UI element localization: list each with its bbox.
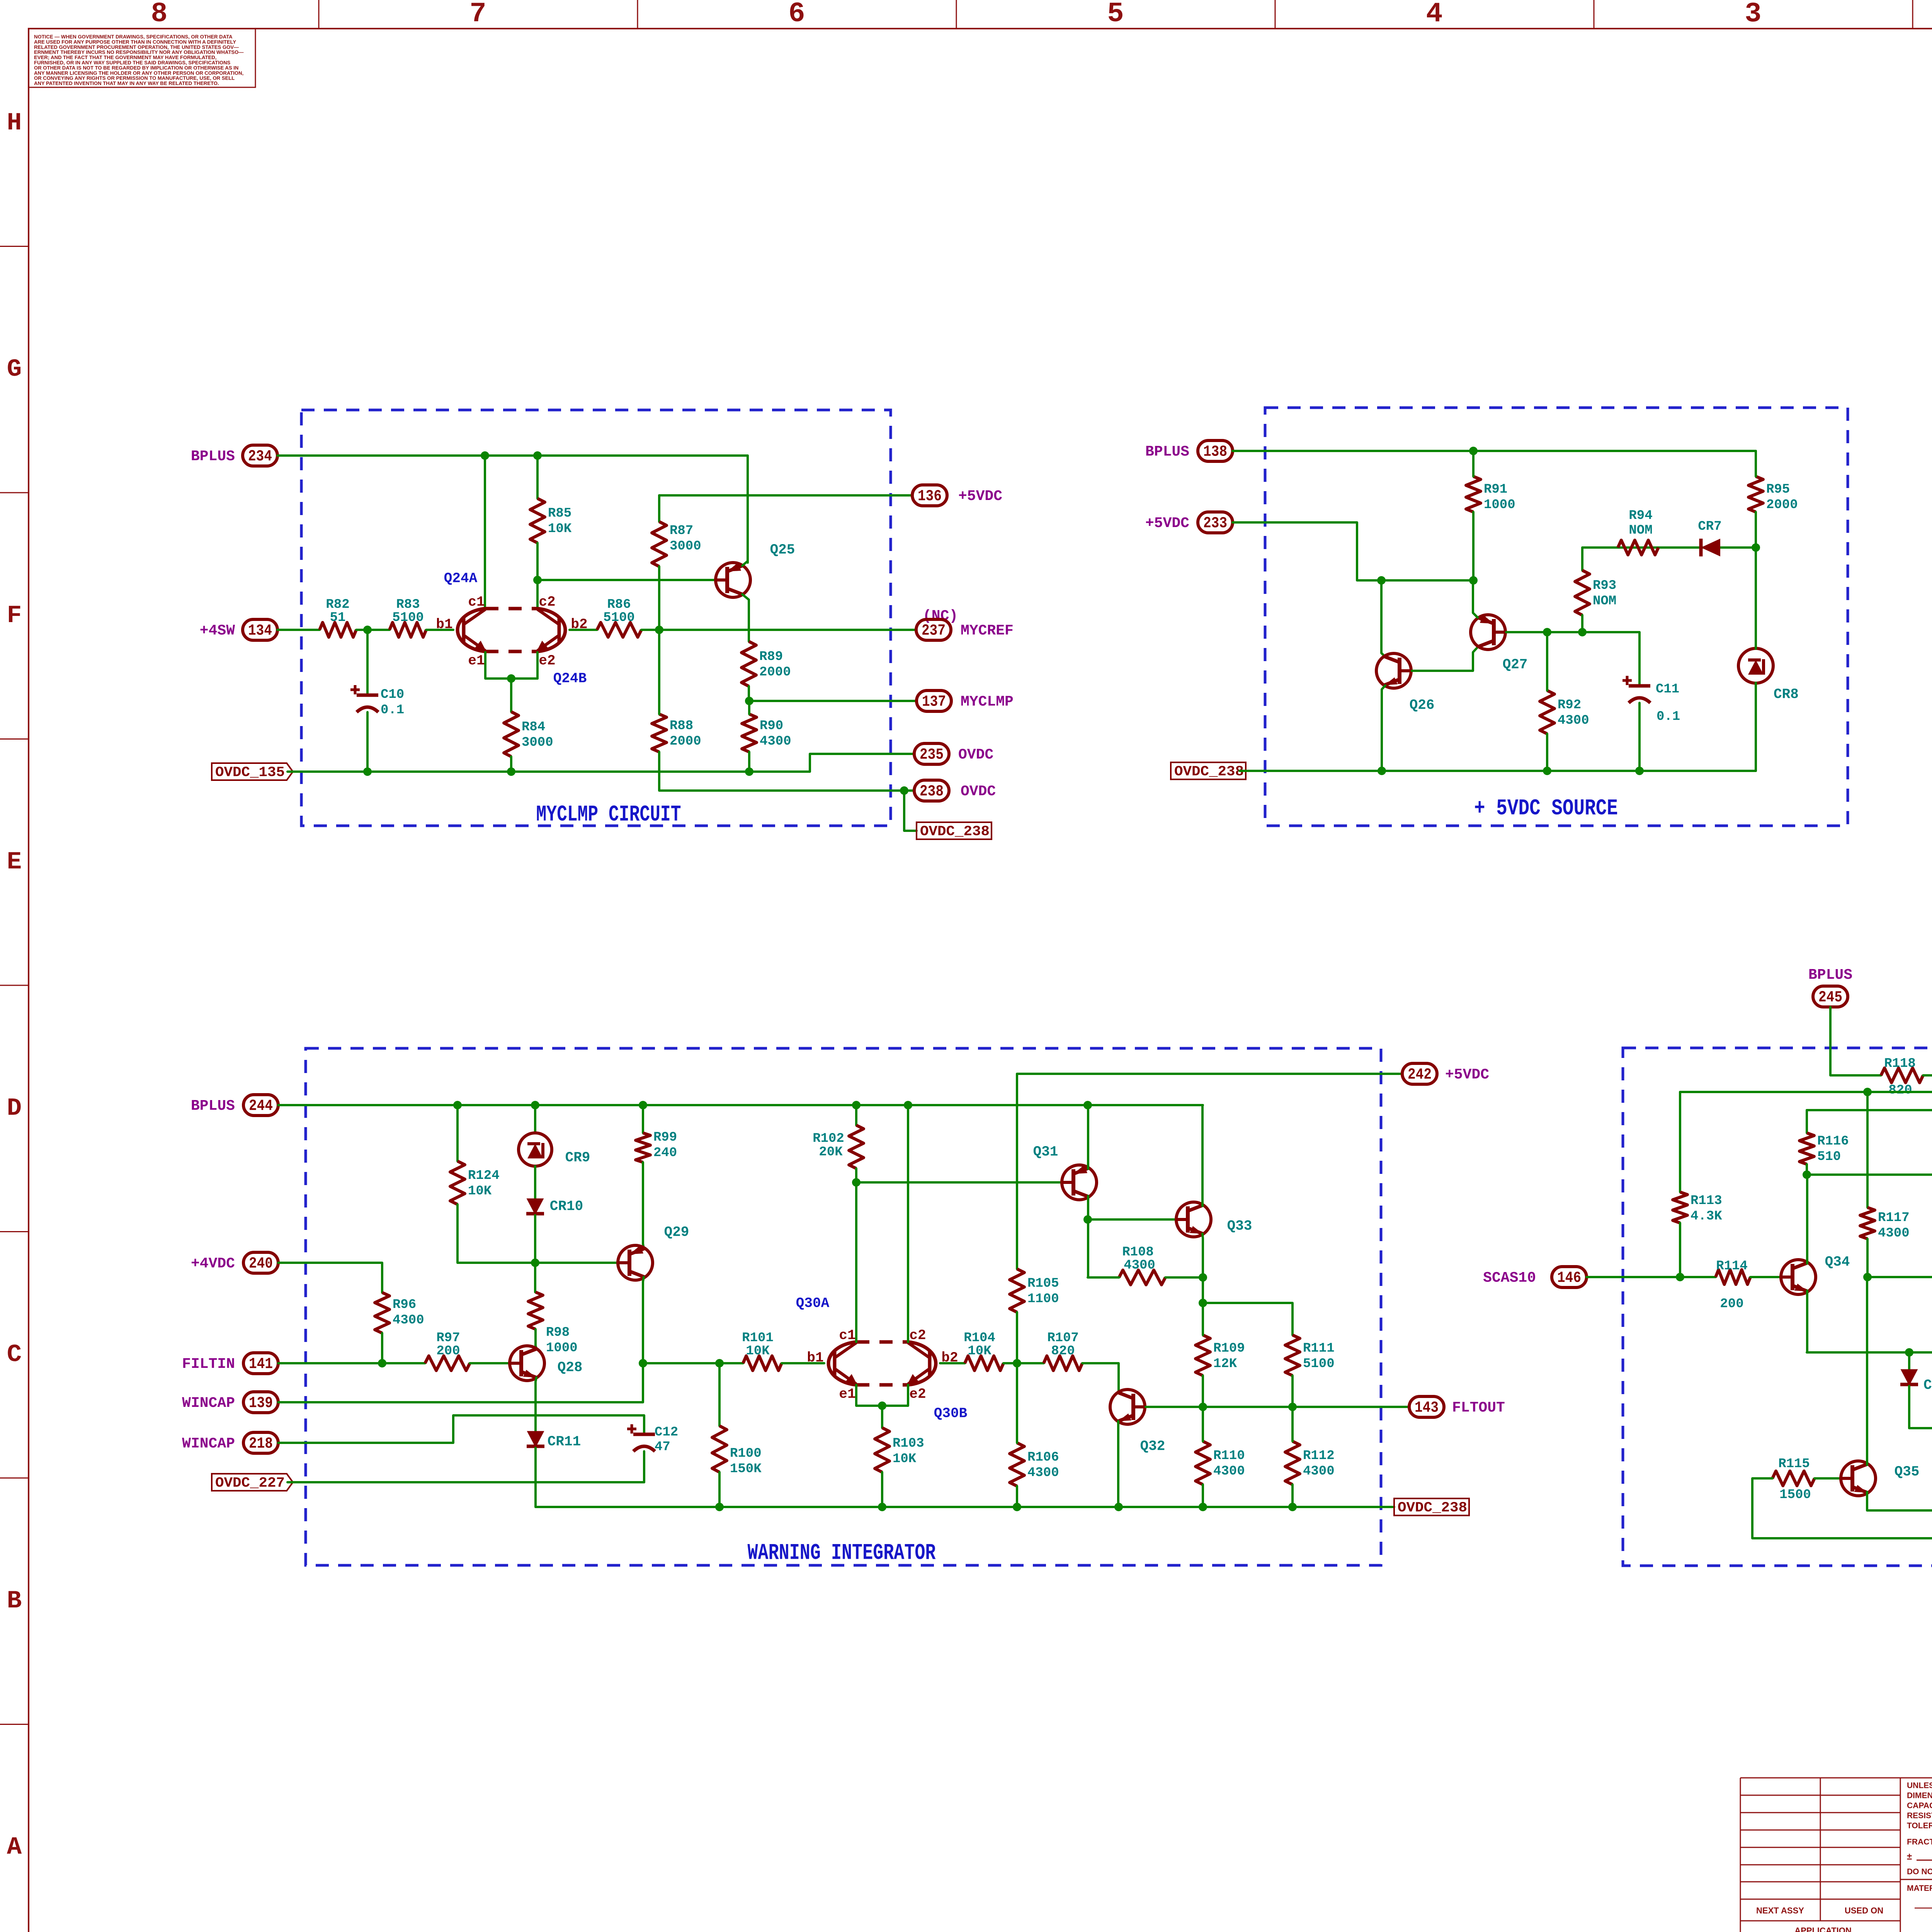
svg-text:0.1: 0.1 <box>381 703 404 718</box>
svg-text:MATERIAL: MATERIAL <box>1907 1884 1932 1893</box>
svg-text:1100: 1100 <box>1027 1292 1059 1306</box>
svg-text:242: 242 <box>1408 1066 1432 1084</box>
svg-text:R110: R110 <box>1213 1449 1245 1463</box>
svg-text:e1: e1 <box>839 1386 855 1402</box>
svg-text:BPLUS: BPLUS <box>1808 967 1852 983</box>
svg-text:233: 233 <box>1203 515 1227 532</box>
svg-text:5100: 5100 <box>392 611 424 625</box>
svg-text:2000: 2000 <box>670 734 701 749</box>
svg-text:244: 244 <box>249 1098 273 1115</box>
svg-text:R96: R96 <box>393 1298 416 1312</box>
svg-text:51: 51 <box>330 611 346 625</box>
svg-text:5: 5 <box>1107 0 1124 30</box>
svg-text:4300: 4300 <box>1027 1466 1059 1480</box>
svg-text:E: E <box>7 848 22 876</box>
svg-text:FRACTIONS: FRACTIONS <box>1907 1838 1932 1847</box>
svg-text:RESISTOR VALUES ARE IN OHMS: RESISTOR VALUES ARE IN OHMS <box>1907 1811 1932 1820</box>
svg-text:WINCAP: WINCAP <box>182 1435 235 1452</box>
svg-text:1000: 1000 <box>1484 498 1515 512</box>
svg-text:OVDC: OVDC <box>958 747 993 763</box>
svg-text:6: 6 <box>788 0 805 30</box>
svg-text:820: 820 <box>1051 1344 1075 1359</box>
svg-text:R116: R116 <box>1817 1134 1849 1149</box>
svg-text:F: F <box>7 602 22 630</box>
svg-text:2000: 2000 <box>759 665 791 680</box>
svg-text:+5VDC: +5VDC <box>1445 1066 1489 1083</box>
svg-text:139: 139 <box>249 1395 273 1412</box>
svg-text:MYCLMP: MYCLMP <box>961 694 1014 710</box>
svg-text:D: D <box>7 1095 22 1122</box>
svg-text:R124: R124 <box>468 1168 500 1183</box>
svg-text:+5VDC: +5VDC <box>1145 515 1189 532</box>
svg-text:3: 3 <box>1745 0 1761 30</box>
svg-text:R87: R87 <box>670 524 693 538</box>
svg-text:4300: 4300 <box>1878 1226 1910 1241</box>
svg-text:FILTIN: FILTIN <box>182 1356 235 1372</box>
svg-text:e2: e2 <box>539 653 555 669</box>
svg-text:R106: R106 <box>1027 1450 1059 1465</box>
svg-text:Q35: Q35 <box>1895 1464 1920 1480</box>
svg-text:R102: R102 <box>813 1131 844 1146</box>
svg-text:2000: 2000 <box>1766 498 1798 512</box>
svg-text:OVDC: OVDC <box>961 783 996 800</box>
svg-text:±: ± <box>1907 1851 1912 1862</box>
svg-text:10K: 10K <box>468 1184 492 1199</box>
svg-text:4300: 4300 <box>1124 1258 1155 1273</box>
svg-text:Q28: Q28 <box>558 1360 583 1376</box>
svg-text:R112: R112 <box>1303 1449 1335 1463</box>
svg-text:+ 5VDC SOURCE: + 5VDC SOURCE <box>1474 796 1618 821</box>
svg-text:R95: R95 <box>1766 482 1790 497</box>
svg-text:Q24B: Q24B <box>553 671 587 687</box>
svg-text:Q26: Q26 <box>1410 697 1435 713</box>
svg-text:e2: e2 <box>909 1386 926 1402</box>
svg-text:R84: R84 <box>522 720 545 735</box>
svg-text:Q34: Q34 <box>1825 1254 1850 1270</box>
svg-text:4300: 4300 <box>1303 1464 1335 1479</box>
svg-text:C12: C12 <box>655 1425 678 1440</box>
svg-text:R94: R94 <box>1629 509 1652 523</box>
svg-text:R104: R104 <box>964 1331 995 1345</box>
svg-text:10K: 10K <box>893 1452 917 1466</box>
svg-text:UNLESS OTHERWISE SPECIFIED: UNLESS OTHERWISE SPECIFIED <box>1907 1781 1932 1790</box>
svg-text:R97: R97 <box>436 1331 460 1345</box>
svg-text:R108: R108 <box>1122 1245 1154 1260</box>
svg-text:R83: R83 <box>396 597 420 612</box>
svg-text:238: 238 <box>920 783 944 801</box>
svg-text:c1: c1 <box>468 594 485 610</box>
svg-text:OVDC_227: OVDC_227 <box>215 1475 285 1491</box>
svg-text:+4VDC: +4VDC <box>191 1255 235 1272</box>
svg-text:R100: R100 <box>730 1446 762 1461</box>
svg-text:c1: c1 <box>839 1328 855 1344</box>
svg-text:234: 234 <box>248 448 272 466</box>
svg-text:5100: 5100 <box>603 611 635 625</box>
svg-text:WARNING INTEGRATOR: WARNING INTEGRATOR <box>748 1541 936 1566</box>
svg-text:CR9: CR9 <box>565 1150 590 1166</box>
svg-text:R105: R105 <box>1027 1276 1059 1291</box>
svg-text:c2: c2 <box>909 1328 926 1344</box>
svg-text:12K: 12K <box>1213 1357 1237 1371</box>
svg-text:R91: R91 <box>1484 482 1507 497</box>
svg-text:4.3K: 4.3K <box>1690 1209 1722 1224</box>
svg-text:3000: 3000 <box>670 539 701 554</box>
svg-text:R92: R92 <box>1558 698 1581 713</box>
svg-text:200: 200 <box>436 1344 460 1359</box>
svg-text:10K: 10K <box>746 1344 770 1359</box>
svg-text:R103: R103 <box>893 1436 924 1451</box>
svg-text:R89: R89 <box>759 650 783 664</box>
svg-text:235: 235 <box>920 747 944 764</box>
svg-text:4300: 4300 <box>760 734 791 749</box>
svg-text:SCAS10: SCAS10 <box>1483 1270 1536 1286</box>
svg-text:150K: 150K <box>730 1462 762 1476</box>
svg-text:Q32: Q32 <box>1140 1439 1165 1454</box>
svg-text:CAPACITOR VALUES ARE IN uF: CAPACITOR VALUES ARE IN uF <box>1907 1801 1932 1810</box>
svg-text:b1: b1 <box>807 1350 823 1366</box>
svg-text:+4SW: +4SW <box>200 622 235 639</box>
svg-text:Q29: Q29 <box>664 1225 689 1240</box>
svg-text:Q30A: Q30A <box>796 1296 830 1311</box>
svg-text:R88: R88 <box>670 719 693 733</box>
svg-text:237: 237 <box>922 622 946 640</box>
svg-text:47: 47 <box>655 1440 670 1454</box>
svg-text:R111: R111 <box>1303 1341 1335 1356</box>
svg-text:OVDC_238: OVDC_238 <box>1398 1500 1467 1516</box>
svg-text:Q24A: Q24A <box>444 571 478 587</box>
svg-text:Q30B: Q30B <box>934 1406 967 1422</box>
svg-text:CR12: CR12 <box>1923 1378 1932 1393</box>
svg-text:143: 143 <box>1415 1400 1439 1417</box>
svg-text:3000: 3000 <box>522 735 553 750</box>
svg-text:C11: C11 <box>1656 682 1679 697</box>
svg-text:OVDC_238: OVDC_238 <box>920 824 990 840</box>
svg-text:218: 218 <box>249 1435 273 1453</box>
svg-text:B: B <box>7 1587 22 1615</box>
svg-text:APPLICATION: APPLICATION <box>1794 1926 1851 1932</box>
svg-text:+5VDC: +5VDC <box>958 488 1002 505</box>
svg-text:137: 137 <box>922 694 946 711</box>
svg-text:TOLERANCES ON: TOLERANCES ON <box>1907 1821 1932 1830</box>
svg-text:Q25: Q25 <box>770 542 795 558</box>
svg-text:4300: 4300 <box>1213 1464 1245 1479</box>
svg-text:Q31: Q31 <box>1033 1144 1058 1160</box>
svg-text:R115: R115 <box>1778 1457 1810 1471</box>
svg-text:R85: R85 <box>548 506 571 521</box>
svg-text:Q27: Q27 <box>1503 657 1528 673</box>
svg-text:0.1: 0.1 <box>1656 709 1680 724</box>
svg-text:7: 7 <box>469 0 486 30</box>
svg-text:FLTOUT: FLTOUT <box>1452 1400 1505 1416</box>
svg-text:WINCAP: WINCAP <box>182 1395 235 1412</box>
svg-text:CR8: CR8 <box>1774 687 1799 702</box>
svg-text:1000: 1000 <box>546 1341 578 1355</box>
svg-text:R93: R93 <box>1593 578 1616 593</box>
svg-text:R118: R118 <box>1884 1056 1916 1071</box>
svg-text:R114: R114 <box>1716 1259 1748 1274</box>
svg-text:240: 240 <box>653 1146 677 1160</box>
svg-text:C: C <box>7 1341 22 1369</box>
svg-text:DIMENSIONS ARE IN INCHES: DIMENSIONS ARE IN INCHES <box>1907 1791 1932 1800</box>
svg-text:c2: c2 <box>539 594 555 610</box>
svg-text:C10: C10 <box>381 687 404 702</box>
svg-text:NOM: NOM <box>1629 523 1652 538</box>
svg-text:4: 4 <box>1426 0 1442 30</box>
svg-text:R117: R117 <box>1878 1211 1910 1225</box>
svg-text:10K: 10K <box>548 522 572 536</box>
svg-text:G: G <box>7 355 22 383</box>
svg-text:R98: R98 <box>546 1325 570 1340</box>
svg-text:510: 510 <box>1817 1150 1841 1164</box>
svg-text:R90: R90 <box>760 719 783 733</box>
svg-text:10K: 10K <box>968 1344 992 1359</box>
svg-text:H: H <box>7 109 22 137</box>
svg-text:141: 141 <box>249 1356 273 1373</box>
svg-text:e1: e1 <box>468 653 485 669</box>
svg-text:R113: R113 <box>1690 1194 1722 1208</box>
svg-text:BPLUS: BPLUS <box>1145 444 1189 460</box>
svg-text:R82: R82 <box>326 597 349 612</box>
svg-text:240: 240 <box>249 1255 273 1273</box>
svg-text:4300: 4300 <box>393 1313 424 1328</box>
svg-text:245: 245 <box>1818 989 1842 1007</box>
svg-text:134: 134 <box>248 622 272 640</box>
svg-text:R101: R101 <box>742 1331 774 1345</box>
svg-text:R86: R86 <box>607 597 631 612</box>
svg-text:NOM: NOM <box>1593 594 1616 609</box>
svg-text:R107: R107 <box>1047 1331 1079 1345</box>
svg-text:5100: 5100 <box>1303 1357 1335 1371</box>
svg-text:CR11: CR11 <box>548 1434 581 1450</box>
svg-text:138: 138 <box>1203 444 1227 461</box>
svg-text:8: 8 <box>151 0 167 30</box>
svg-text:A: A <box>7 1833 22 1861</box>
svg-text:R109: R109 <box>1213 1341 1245 1356</box>
svg-text:Q33: Q33 <box>1227 1218 1252 1234</box>
svg-text:136: 136 <box>918 488 942 505</box>
svg-text:BPLUS: BPLUS <box>191 1098 235 1114</box>
svg-text:DO NOT SCALE THIS DRAWING: DO NOT SCALE THIS DRAWING <box>1907 1867 1932 1876</box>
svg-text:NEXT ASSY: NEXT ASSY <box>1756 1906 1804 1915</box>
svg-text:146: 146 <box>1557 1270 1581 1287</box>
svg-text:USED ON: USED ON <box>1845 1906 1883 1915</box>
svg-text:ANY PATENTED INVENTION THAT MA: ANY PATENTED INVENTION THAT MAY IN ANY W… <box>34 80 219 86</box>
svg-text:4300: 4300 <box>1558 713 1589 728</box>
svg-text:CR7: CR7 <box>1698 519 1721 534</box>
svg-text:OVDC_238: OVDC_238 <box>1174 764 1244 780</box>
svg-text:820: 820 <box>1888 1083 1912 1098</box>
svg-text:CR10: CR10 <box>550 1199 583 1214</box>
svg-text:b1: b1 <box>436 617 452 633</box>
svg-text:MYCREF: MYCREF <box>961 622 1014 639</box>
svg-text:MYCLMP CIRCUIT: MYCLMP CIRCUIT <box>536 802 681 827</box>
svg-text:200: 200 <box>1720 1297 1743 1311</box>
svg-text:1500: 1500 <box>1779 1488 1811 1502</box>
svg-text:20K: 20K <box>819 1145 843 1160</box>
svg-text:OVDC_135: OVDC_135 <box>215 765 285 781</box>
svg-text:R99: R99 <box>653 1130 677 1145</box>
svg-text:BPLUS: BPLUS <box>191 448 235 465</box>
